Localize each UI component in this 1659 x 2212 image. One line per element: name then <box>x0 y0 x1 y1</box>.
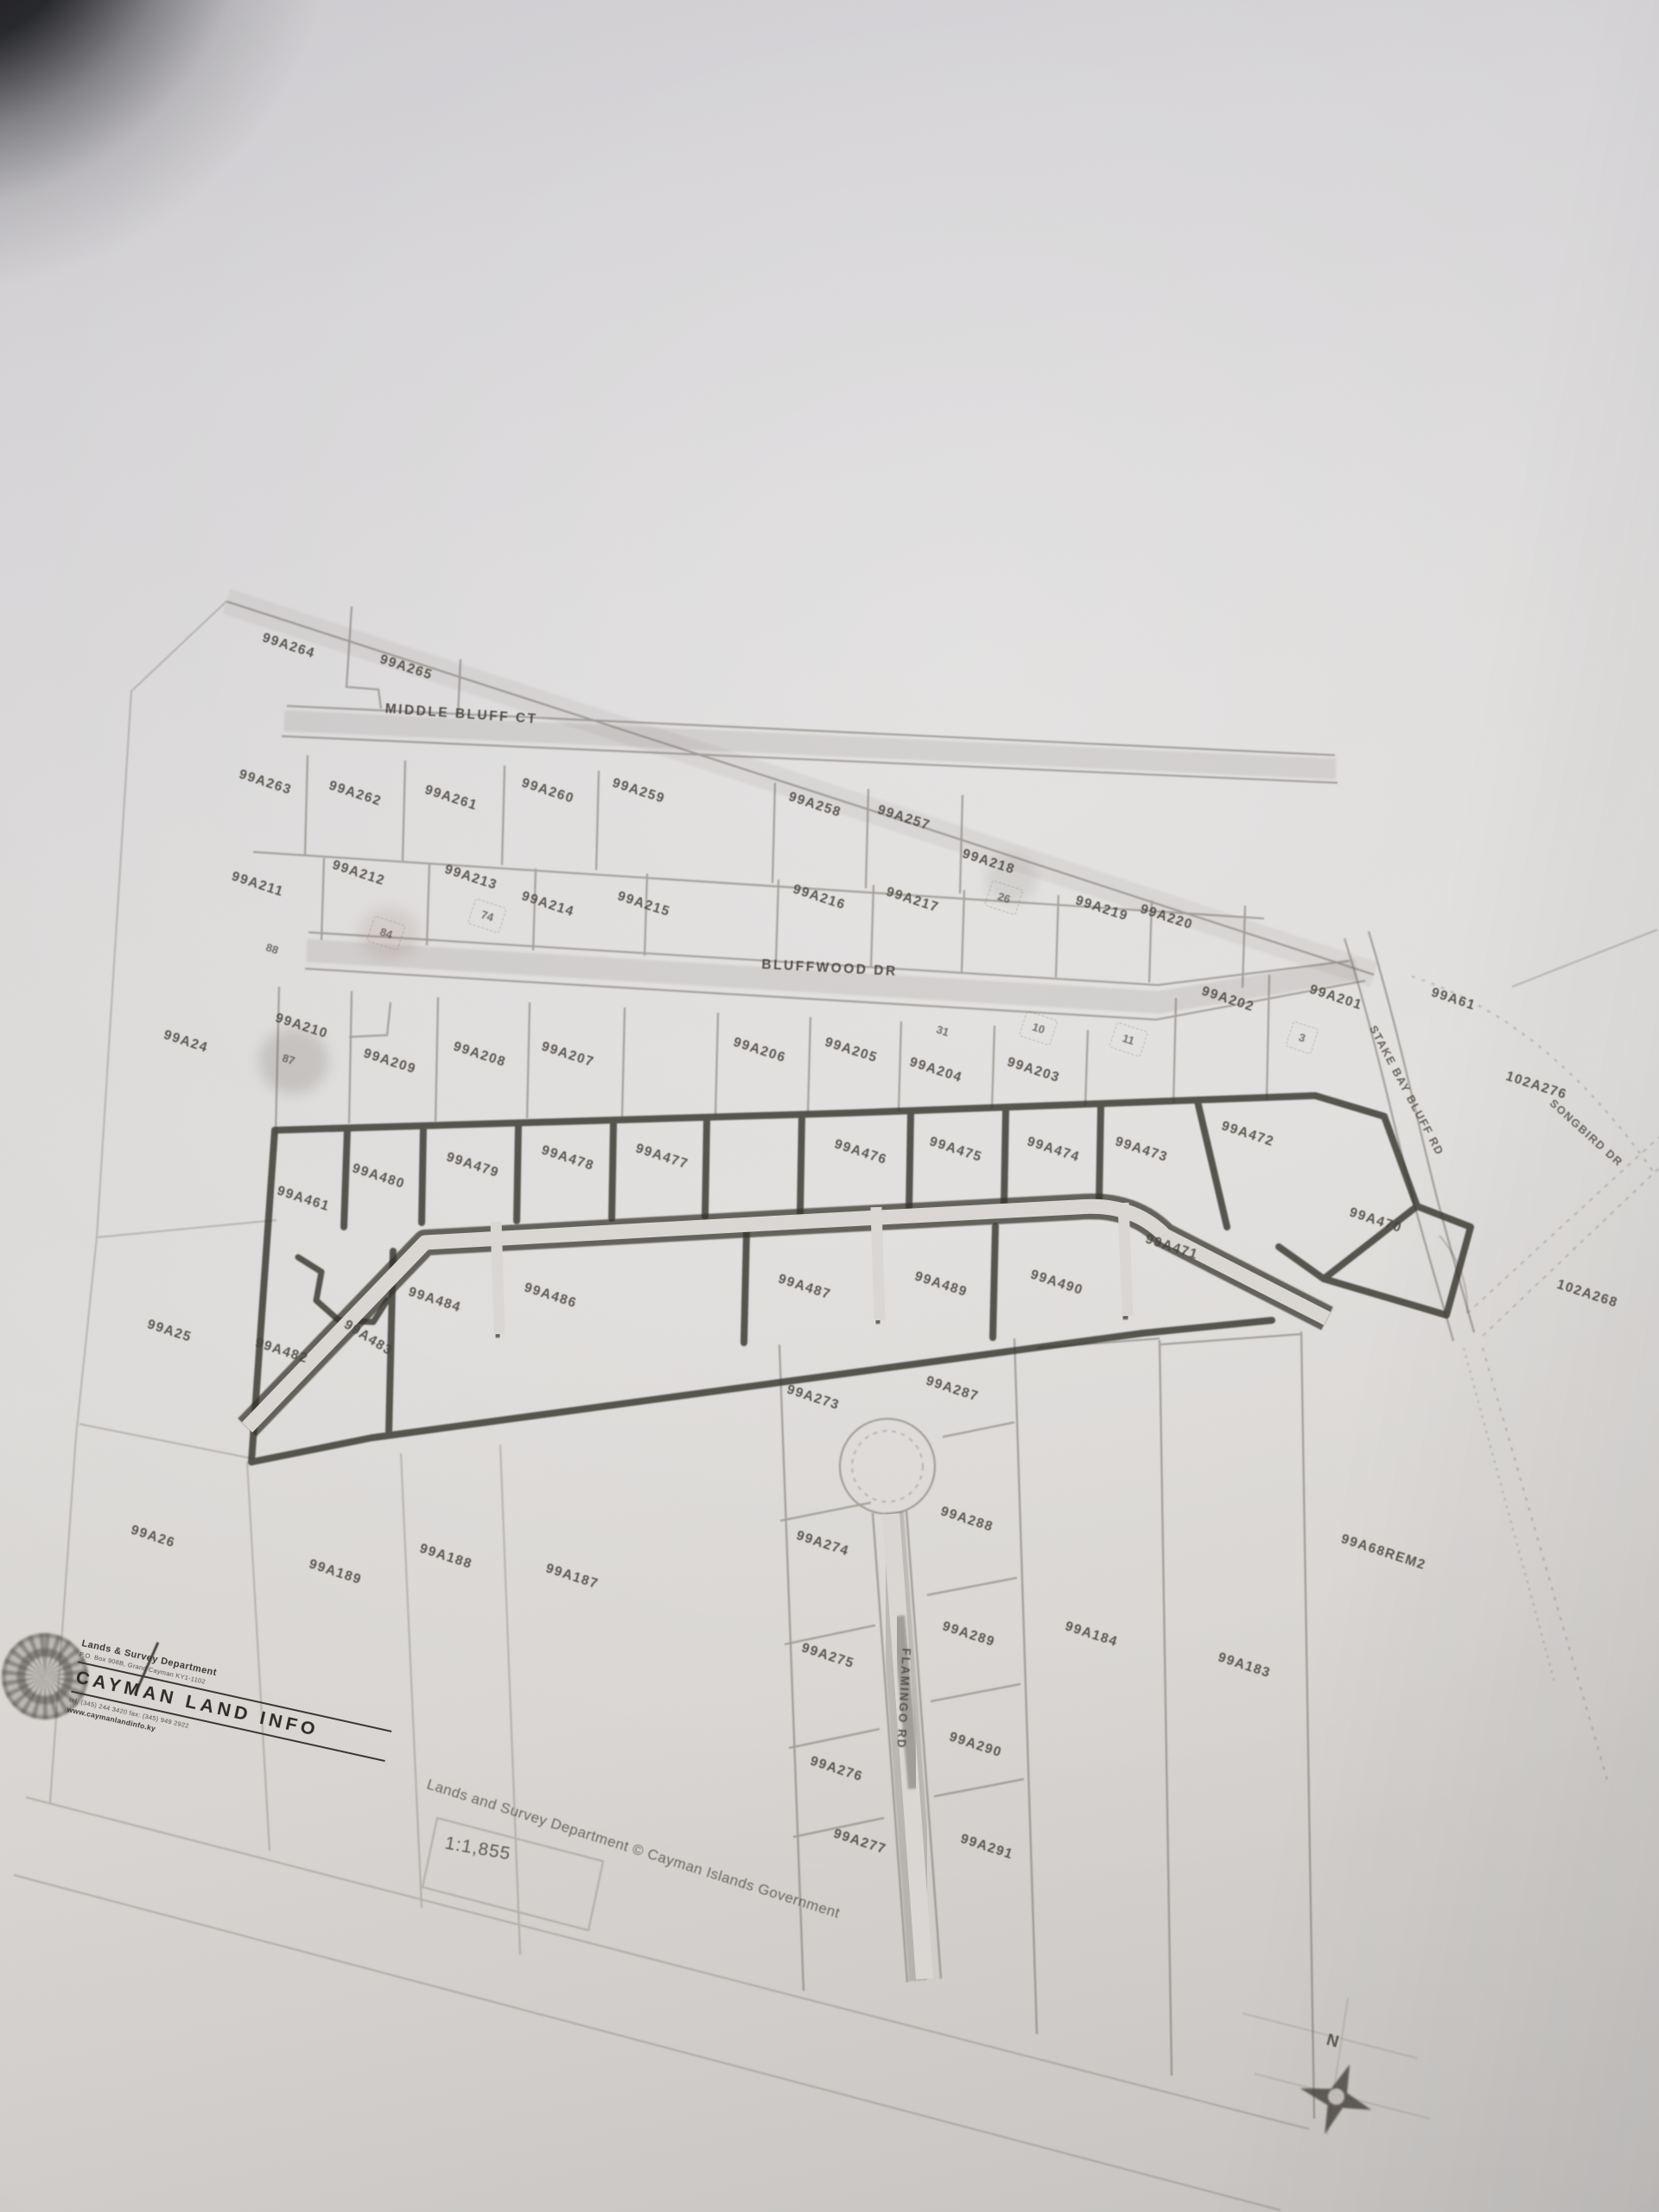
parcel-label: 99A257 <box>876 803 933 835</box>
road-label: STAKE BAY BLUFF RD <box>1367 1023 1446 1158</box>
parcel-label: 99A213 <box>442 862 499 894</box>
parcel-label: 99A471 <box>1143 1231 1200 1263</box>
parcel-label: 99A26 <box>129 1522 177 1552</box>
parcel-label: 99A214 <box>519 889 576 921</box>
parcel-label: 99A261 <box>423 783 480 815</box>
block-number-label: 3 <box>1286 1020 1319 1054</box>
road-label: FLAMINGO RD <box>895 1648 913 1750</box>
parcel-label: 99A209 <box>361 1046 418 1077</box>
parcel-label: 99A478 <box>539 1143 596 1175</box>
parcel-label: 99A289 <box>940 1618 997 1650</box>
block-number-label: 88 <box>264 941 280 957</box>
photo-of-cadastral-map: 99A26499A26599A26399A26299A26199A26099A2… <box>0 0 1659 2212</box>
parcel-label: 99A201 <box>1307 982 1364 1014</box>
parcel-label: 99A263 <box>237 767 294 799</box>
parcel-label: 99A202 <box>1199 984 1256 1016</box>
parcel-label: 99A476 <box>833 1136 890 1168</box>
parcel-label: 99A220 <box>1138 902 1195 934</box>
print-smudge <box>985 855 1037 903</box>
parcel-label: 99A25 <box>145 1317 194 1346</box>
parcel-label: 99A291 <box>959 1831 1016 1863</box>
parcel-label: 99A473 <box>1113 1135 1170 1166</box>
parcel-label: 99A480 <box>350 1161 407 1193</box>
parcel-label: 99A274 <box>794 1529 851 1560</box>
map-labels-layer: 99A26499A26599A26399A26299A26199A26099A2… <box>0 0 1659 2212</box>
parcel-label: 102A268 <box>1555 1277 1620 1312</box>
parcel-label: 99A461 <box>275 1183 332 1215</box>
parcel-label: 99A258 <box>786 789 843 821</box>
parcel-label: 99A273 <box>785 1382 842 1414</box>
parcel-label: 99A208 <box>451 1039 508 1071</box>
parcel-label: 99A211 <box>229 869 285 900</box>
parcel-label: 99A490 <box>1028 1267 1085 1299</box>
parcel-label: 102A276 <box>1503 1069 1568 1103</box>
block-number-label: 31 <box>934 1023 950 1039</box>
parcel-label: 99A264 <box>260 630 317 662</box>
parcel-label: 99A290 <box>947 1729 1004 1761</box>
parcel-label: 99A259 <box>610 776 667 808</box>
parcel-label: 99A487 <box>776 1272 833 1304</box>
parcel-label: 99A262 <box>327 779 384 810</box>
parcel-label: 99A212 <box>330 858 387 890</box>
block-number-label: 74 <box>467 898 507 933</box>
parcel-label: 99A205 <box>823 1035 880 1067</box>
parcel-label: 99A183 <box>1216 1649 1273 1681</box>
parcel-label: 99A206 <box>731 1035 788 1067</box>
parcel-label: 99A204 <box>907 1055 964 1087</box>
parcel-label: 99A216 <box>791 882 849 914</box>
block-number-label: 10 <box>1019 1011 1058 1046</box>
map-sheet: 99A26499A26599A26399A26299A26199A26099A2… <box>0 0 1659 2212</box>
parcel-label: 99A489 <box>912 1269 969 1301</box>
parcel-label: 99A217 <box>884 885 941 917</box>
parcel-label: 99A484 <box>406 1285 463 1317</box>
parcel-label: 99A68REM2 <box>1339 1532 1428 1574</box>
parcel-label: 99A215 <box>615 889 672 921</box>
parcel-label: 99A288 <box>938 1503 995 1535</box>
parcel-label: 99A470 <box>1347 1205 1404 1237</box>
parcel-label: 99A184 <box>1063 1618 1120 1650</box>
parcel-label: 99A479 <box>444 1150 501 1182</box>
parcel-label: 99A189 <box>307 1557 364 1589</box>
parcel-label: 99A24 <box>162 1027 210 1057</box>
parcel-label: 99A475 <box>927 1135 984 1166</box>
parcel-label: 99A474 <box>1025 1135 1082 1166</box>
parcel-label: 99A486 <box>523 1281 580 1313</box>
road-label: SONGBIRD DR <box>1547 1096 1625 1169</box>
parcel-label: 99A187 <box>544 1561 601 1593</box>
parcel-label: 99A275 <box>799 1641 856 1673</box>
parcel-label: 99A203 <box>1005 1055 1062 1087</box>
parcel-label: 99A276 <box>808 1754 865 1786</box>
parcel-label: 99A472 <box>1219 1119 1276 1151</box>
print-smudge <box>259 1028 328 1094</box>
parcel-label: 99A477 <box>633 1141 690 1173</box>
block-number-label: 11 <box>1109 1022 1147 1058</box>
road-label: MIDDLE BLUFF CT <box>385 702 538 728</box>
parcel-label: 99A482 <box>254 1336 311 1368</box>
parcel-label: 99A207 <box>539 1039 596 1071</box>
print-smudge <box>359 907 419 959</box>
parcel-label: 99A188 <box>418 1541 475 1573</box>
parcel-label: 99A61 <box>1429 985 1478 1014</box>
parcel-label: 99A483 <box>341 1317 396 1359</box>
parcel-label: 99A265 <box>378 652 435 684</box>
parcel-label: 99A219 <box>1073 893 1130 925</box>
parcel-label: 99A260 <box>519 776 576 808</box>
parcel-label: 99A277 <box>831 1827 888 1859</box>
road-label: BLUFFWOOD DR <box>761 957 898 980</box>
parcel-label: 99A287 <box>924 1373 981 1405</box>
